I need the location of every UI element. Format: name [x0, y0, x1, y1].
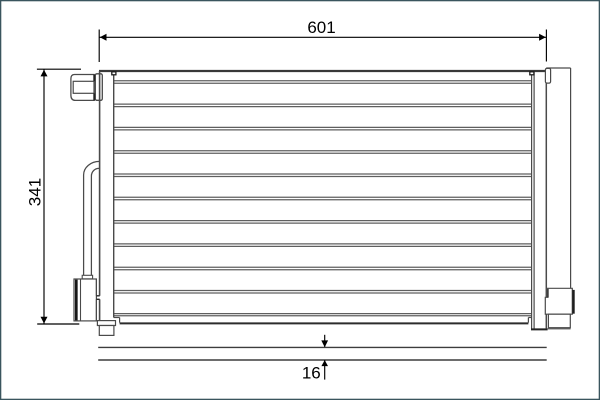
svg-text:16: 16 — [302, 364, 321, 383]
svg-text:341: 341 — [25, 178, 44, 206]
svg-text:601: 601 — [307, 18, 335, 37]
